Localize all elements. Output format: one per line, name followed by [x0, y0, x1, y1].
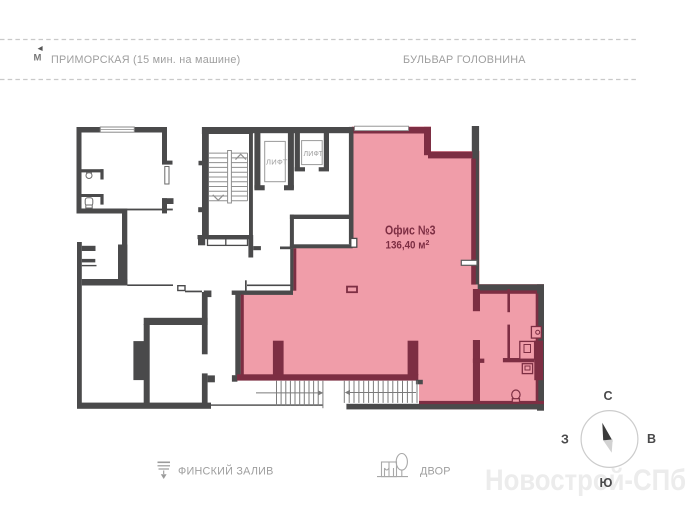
svg-text:М: М [34, 53, 42, 64]
svg-text:ДВОР: ДВОР [420, 466, 451, 478]
svg-text:ФИНСКИЙ ЗАЛИВ: ФИНСКИЙ ЗАЛИВ [178, 465, 274, 478]
svg-text:Новострой-СПб: Новострой-СПб [485, 464, 686, 497]
svg-text:БУЛЬВАР ГОЛОВНИНА: БУЛЬВАР ГОЛОВНИНА [403, 54, 526, 66]
svg-text:ПРИМОРСКАЯ (15 мин. на машин: ПРИМОРСКАЯ (15 мин. на машине) [51, 54, 240, 66]
svg-text:Офис №3: Офис №3 [385, 223, 436, 238]
svg-text:ЛИФТ: ЛИФТ [266, 158, 288, 167]
svg-text:Ю: Ю [600, 476, 613, 490]
svg-text:ЛИФТ: ЛИФТ [304, 151, 324, 158]
svg-text:136,40 м2: 136,40 м2 [386, 239, 430, 251]
svg-text:С: С [604, 389, 613, 403]
svg-text:З: З [561, 433, 569, 447]
svg-text:В: В [647, 432, 656, 446]
